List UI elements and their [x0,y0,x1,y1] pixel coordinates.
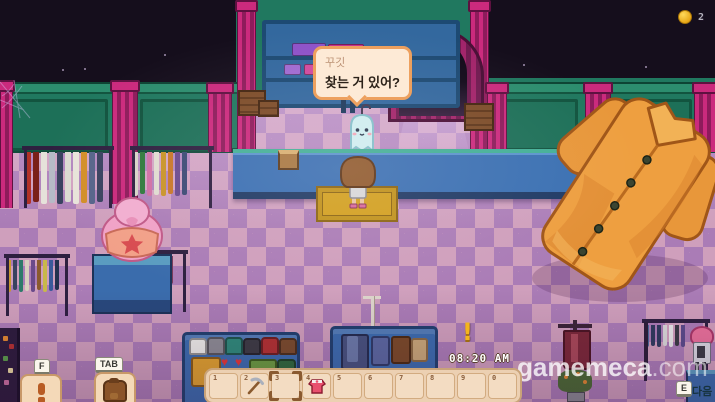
ghost-npc[interactable] [346,103,378,153]
heart-icon: ♥ [221,355,228,369]
watermark: gamemeca.com [517,352,708,383]
next-label[interactable]: 다음 [692,383,712,399]
dialogue-bubble: 꾸깃 찾는 거 있어? [313,46,412,100]
player-character [336,154,380,212]
shop-counter[interactable] [233,149,577,199]
hotbar: 1 2 3 4 5 6 7 8 9 0 [204,368,522,402]
clock-display: 08:20 AM [449,352,510,365]
backpack-item [189,338,207,355]
backpack-item [243,338,261,355]
wooden-crate [464,103,494,131]
alert-exclamation-icon: ! [462,318,473,346]
pants-item [371,336,390,366]
hotbar-slot-8[interactable]: 8 [426,373,455,399]
keycap-f: F [34,359,50,375]
heart-icon: ♥ [235,355,242,369]
hotbar-slot-1[interactable]: 1 [209,373,238,399]
coin-counter: 2 [678,10,704,24]
basket [278,150,299,170]
backpack-item [207,337,225,355]
interact-button[interactable] [20,374,62,402]
blob-mannequin[interactable] [96,196,168,262]
hotbar-slot-7[interactable]: 7 [395,373,424,399]
wall-pillar [208,82,232,152]
tall-pillar [237,0,256,151]
jacket-item [391,336,411,364]
giant-shirt [536,82,715,306]
hotbar-slot-9[interactable]: 9 [457,373,486,399]
folded-clothes [284,64,301,75]
coin-value: 2 [698,12,704,23]
coin-icon [678,10,692,24]
backpack-icon [103,380,127,402]
hotbar-slot-0[interactable]: 0 [488,373,517,399]
exclamation-icon [37,383,45,402]
backpack-item [279,338,297,355]
watermark-name: gamemeca [517,352,651,382]
backpack-item [225,337,243,355]
backpack-item [261,337,279,355]
game-canvas: ♥ ♥ [0,0,715,402]
mannequin-pedestal [92,254,172,314]
hotbar-slot-2[interactable]: 2 [240,373,269,399]
coat-inner [347,336,358,362]
inventory-button[interactable] [94,372,136,402]
dialogue-text: 찾는 거 있어? [325,72,400,91]
keycap-tab: TAB [95,357,123,373]
selection-bracket [292,391,302,401]
night-sky-left [0,0,236,82]
tie-rack[interactable] [4,254,70,300]
hotbar-slot-6[interactable]: 6 [364,373,393,399]
keycap-e[interactable]: E [676,381,692,397]
dialogue-speaker: 꾸깃 [325,54,400,70]
cobweb [0,80,34,120]
edge-shelf [0,328,20,402]
selection-bracket [292,371,302,381]
hotbar-slot-3-selected[interactable]: 3 [271,373,300,399]
selection-bracket [269,371,279,381]
hotbar-slot-5[interactable]: 5 [333,373,362,399]
hotbar-slot-4[interactable]: 4 [302,373,331,399]
selection-bracket [269,391,279,401]
wooden-crate [258,100,279,117]
watermark-tld: .com [651,352,707,382]
shirt-item [411,338,428,362]
